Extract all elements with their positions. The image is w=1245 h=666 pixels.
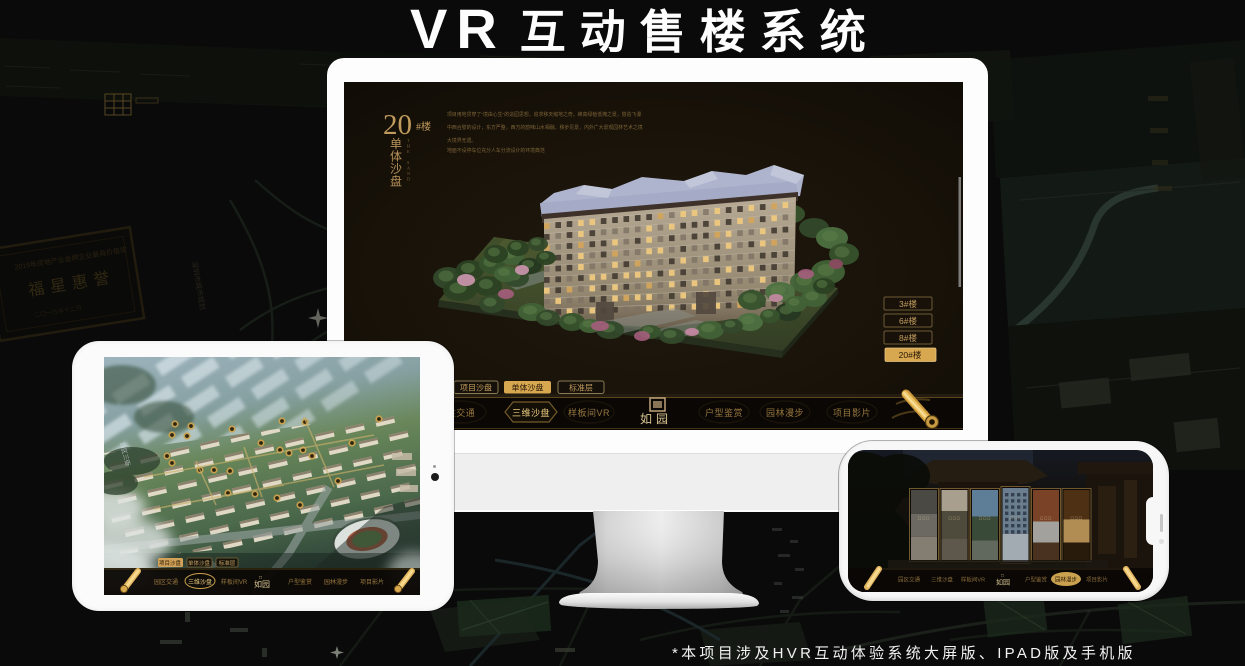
svg-text:项目影片: 项目影片 <box>1086 576 1108 584</box>
svg-text:标准层: 标准层 <box>219 559 236 567</box>
svg-text:项目影片: 项目影片 <box>833 407 871 418</box>
svg-text:项目沙盘: 项目沙盘 <box>460 383 492 393</box>
svg-text:盘: 盘 <box>390 174 402 189</box>
svg-text:园林漫步: 园林漫步 <box>1055 576 1078 584</box>
svg-text:如: 如 <box>640 411 652 426</box>
svg-text:单体沙盘: 单体沙盘 <box>512 383 544 393</box>
svg-text:□: □ <box>1001 573 1004 578</box>
svg-text:样板间VR: 样板间VR <box>961 576 985 584</box>
svg-text:口口口: 口口口 <box>918 516 930 520</box>
svg-text:如园: 如园 <box>254 579 270 589</box>
svg-text:园林漫步: 园林漫步 <box>766 407 804 418</box>
svg-text:园区交通: 园区交通 <box>154 578 178 586</box>
svg-text:园区交通: 园区交通 <box>898 576 921 584</box>
svg-text:6#楼: 6#楼 <box>899 316 917 326</box>
svg-text:项目用地贯穿了"境由心生"的造园思想，追求移天缩地之奇，峰高: 项目用地贯穿了"境由心生"的造园思想，追求移天缩地之奇，峰高绿植低掩之景，營造飞… <box>447 111 641 118</box>
svg-text:园: 园 <box>656 412 668 426</box>
svg-text:大境界无遗。: 大境界无遗。 <box>447 137 476 144</box>
svg-text:户型鉴赏: 户型鉴赏 <box>1025 576 1048 584</box>
svg-text:项目沙盘: 项目沙盘 <box>159 559 182 567</box>
svg-text:H: H <box>407 144 410 149</box>
svg-text:三维沙盘: 三维沙盘 <box>188 578 212 586</box>
svg-text:口口口: 口口口 <box>1040 516 1052 520</box>
svg-text:标准层: 标准层 <box>569 383 593 393</box>
svg-text:样板间VR: 样板间VR <box>568 407 610 418</box>
svg-text:20#楼: 20#楼 <box>899 350 922 360</box>
svg-text:如园: 如园 <box>996 578 1010 587</box>
svg-text:三维沙盘: 三维沙盘 <box>512 407 550 418</box>
svg-text:三维沙盘: 三维沙盘 <box>931 576 954 584</box>
svg-text:N: N <box>407 171 410 176</box>
svg-text:A: A <box>407 166 410 171</box>
svg-text:E: E <box>407 149 410 154</box>
svg-text:地面不设停车位充分人车分流设计的环境典范: 地面不设停车位充分人车分流设计的环境典范 <box>447 147 545 154</box>
svg-text:口口口: 口口口 <box>1009 516 1021 520</box>
svg-text:口口口: 口口口 <box>1070 516 1082 520</box>
svg-text:户型鉴赏: 户型鉴赏 <box>705 407 743 418</box>
svg-text:户型鉴赏: 户型鉴赏 <box>288 578 312 586</box>
svg-text:T: T <box>407 138 410 143</box>
svg-text:项目影片: 项目影片 <box>360 578 384 586</box>
svg-text:中西合璧的设计，东方严整，西方的韵味山水相融，移步见景，内外: 中西合璧的设计，东方严整，西方的韵味山水相融，移步见景，内外广大景观园林艺术之境 <box>447 124 643 131</box>
svg-text:D: D <box>407 177 410 182</box>
svg-text:8#楼: 8#楼 <box>899 333 917 343</box>
svg-text:#楼: #楼 <box>416 120 431 133</box>
svg-text:单体沙盘: 单体沙盘 <box>188 559 211 567</box>
svg-text:口口口: 口口口 <box>948 516 960 520</box>
svg-text:3#楼: 3#楼 <box>899 299 917 309</box>
svg-text:样板间VR: 样板间VR <box>221 578 248 586</box>
svg-text:园林漫步: 园林漫步 <box>324 578 348 586</box>
svg-text:口口口: 口口口 <box>979 516 991 520</box>
